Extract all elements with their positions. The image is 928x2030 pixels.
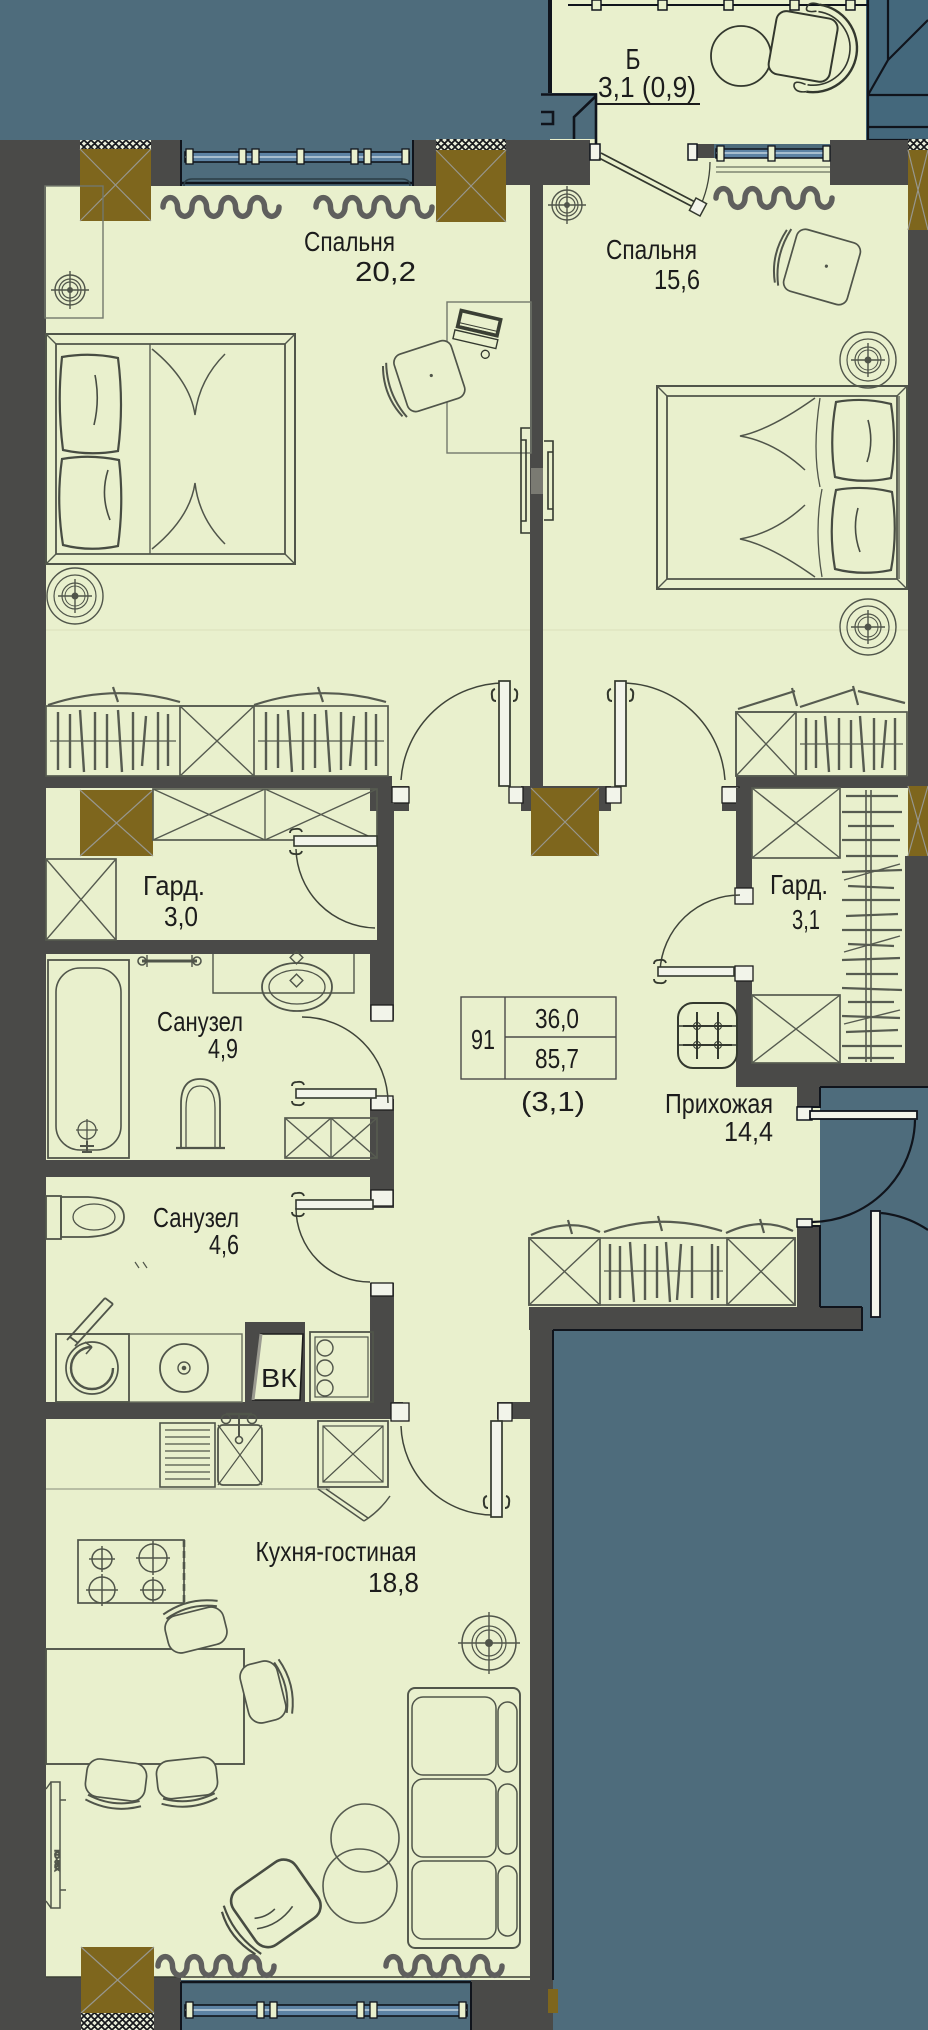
svg-text:(3,1): (3,1): [521, 1086, 585, 1117]
svg-text:3,1: 3,1: [792, 904, 820, 935]
svg-text:Гард.: Гард.: [143, 870, 205, 901]
svg-text:85,7: 85,7: [535, 1043, 579, 1074]
svg-text:Гард.: Гард.: [770, 869, 828, 900]
svg-text:3,0: 3,0: [164, 901, 198, 932]
svg-text:18,8: 18,8: [368, 1567, 419, 1598]
svg-text:KD-55X: KD-55X: [53, 1850, 59, 1871]
svg-text:36,0: 36,0: [535, 1003, 579, 1034]
svg-text:ВК: ВК: [261, 1363, 297, 1393]
svg-text:4,9: 4,9: [208, 1033, 238, 1064]
svg-text:20,2: 20,2: [355, 256, 416, 287]
svg-text:91: 91: [471, 1024, 495, 1055]
svg-text:Кухня-гостиная: Кухня-гостиная: [256, 1536, 417, 1567]
svg-text:14,4: 14,4: [724, 1116, 773, 1147]
svg-text:3,1 (0,9): 3,1 (0,9): [598, 72, 696, 104]
svg-text:Спальня: Спальня: [304, 226, 395, 257]
svg-text:4,6: 4,6: [209, 1229, 239, 1260]
svg-text:Спальня: Спальня: [606, 234, 697, 265]
svg-text:Прихожая: Прихожая: [665, 1088, 773, 1119]
svg-text:15,6: 15,6: [654, 264, 700, 295]
